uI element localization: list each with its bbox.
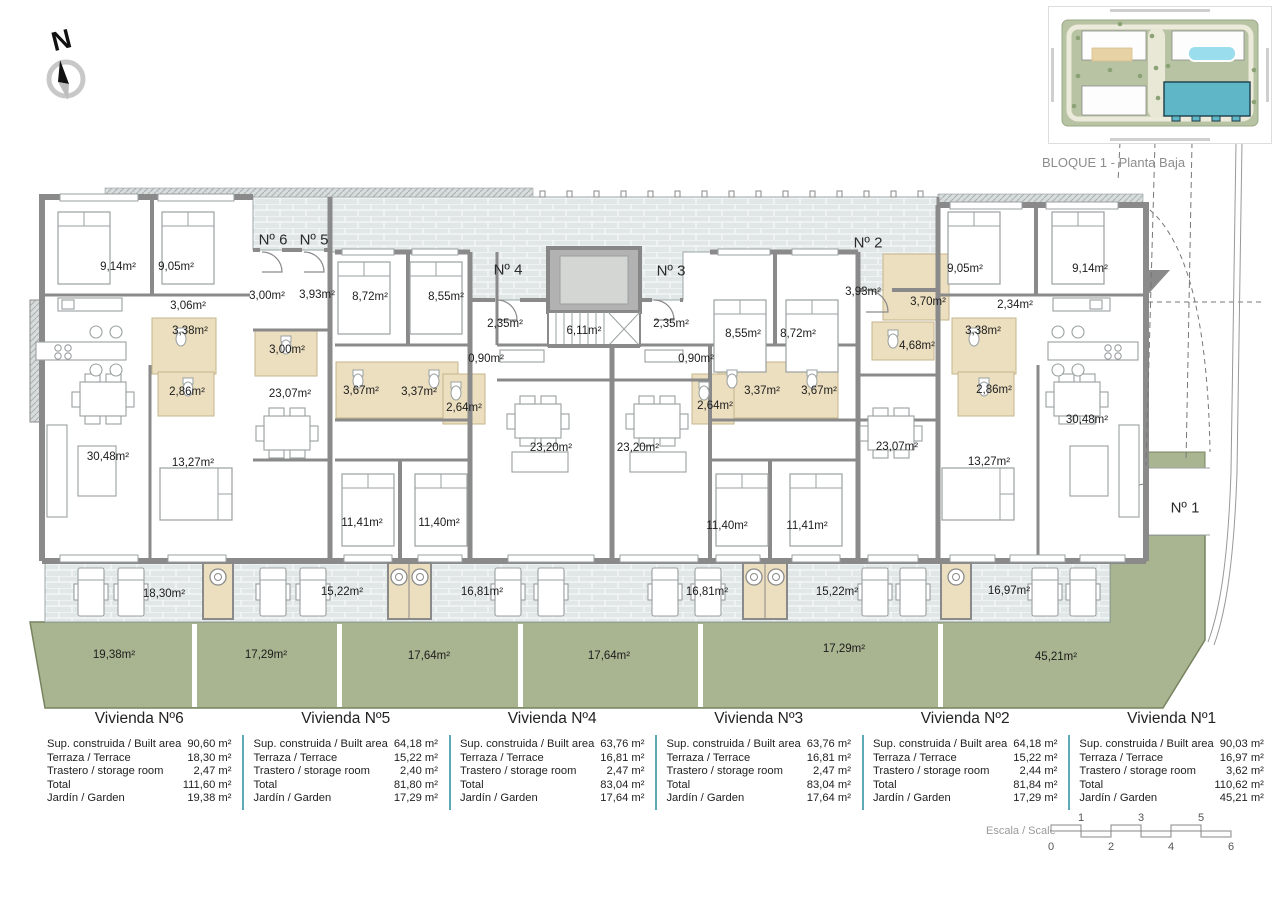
compass-icon: N bbox=[28, 22, 108, 117]
row-value: 90,03 m² bbox=[1214, 738, 1264, 752]
row-value: 83,04 m² bbox=[594, 779, 644, 793]
garden-divider bbox=[518, 624, 523, 707]
garden-divider bbox=[938, 624, 943, 707]
unit-table-row: Trastero / storage room2,47 m² bbox=[47, 765, 231, 779]
row-label: Sup. construida / Built area bbox=[460, 738, 594, 752]
floorplan-page: { "compass": {"label": "N"}, "site_plan"… bbox=[0, 0, 1280, 905]
scale-tick: 0 bbox=[1048, 841, 1054, 853]
unit-table-row: Jardín / Garden17,64 m² bbox=[460, 792, 644, 806]
row-label: Jardín / Garden bbox=[47, 792, 125, 806]
row-label: Terraza / Terrace bbox=[253, 752, 337, 766]
row-label: Trastero / storage room bbox=[460, 765, 576, 779]
row-label: Total bbox=[253, 779, 277, 793]
row-value: 90,60 m² bbox=[181, 738, 231, 752]
scale-tick: 1 bbox=[1078, 812, 1084, 824]
scale-segments bbox=[1051, 825, 1231, 837]
unit-table-row: Total111,60 m² bbox=[47, 779, 231, 793]
row-label: Total bbox=[460, 779, 484, 793]
unit-table-row: Sup. construida / Built area90,03 m² bbox=[1079, 738, 1263, 752]
elevator bbox=[560, 256, 628, 304]
unit-table-title: Vivienda Nº1 bbox=[1079, 710, 1263, 728]
unit-table-row: Trastero / storage room2,47 m² bbox=[666, 765, 850, 779]
unit-table-row: Total110,62 m² bbox=[1079, 779, 1263, 793]
unit-table-row: Sup. construida / Built area64,18 m² bbox=[873, 738, 1057, 752]
scale-tick: 5 bbox=[1198, 812, 1204, 824]
row-value: 63,76 m² bbox=[801, 738, 851, 752]
unit-table: Vivienda Nº6Sup. construida / Built area… bbox=[36, 710, 242, 806]
unit-table-row: Terraza / Terrace15,22 m² bbox=[253, 752, 437, 766]
unit-table-row: Total81,84 m² bbox=[873, 779, 1057, 793]
pool bbox=[1188, 46, 1236, 61]
row-label: Trastero / storage room bbox=[1079, 765, 1195, 779]
row-label: Jardín / Garden bbox=[1079, 792, 1157, 806]
unit-table-title: Vivienda Nº2 bbox=[873, 710, 1057, 728]
unit-table: Vivienda Nº2Sup. construida / Built area… bbox=[862, 710, 1068, 806]
unit-table-row: Terraza / Terrace16,81 m² bbox=[460, 752, 644, 766]
unit-table-row: Terraza / Terrace16,81 m² bbox=[666, 752, 850, 766]
row-value: 64,18 m² bbox=[388, 738, 438, 752]
unit-tables: Vivienda Nº6Sup. construida / Built area… bbox=[36, 710, 1244, 806]
row-value: 3,62 m² bbox=[1220, 765, 1264, 779]
row-value: 2,47 m² bbox=[807, 765, 851, 779]
row-value: 2,47 m² bbox=[188, 765, 232, 779]
unit-table-row: Terraza / Terrace16,97 m² bbox=[1079, 752, 1263, 766]
row-value: 19,38 m² bbox=[181, 792, 231, 806]
row-label: Jardín / Garden bbox=[253, 792, 331, 806]
building-block bbox=[1082, 86, 1146, 115]
row-label: Sup. construida / Built area bbox=[253, 738, 387, 752]
drawing-title: BLOQUE 1 - Planta Baja bbox=[1042, 155, 1272, 170]
row-value: 17,29 m² bbox=[1007, 792, 1057, 806]
scale-tick: 6 bbox=[1228, 841, 1234, 853]
row-label: Terraza / Terrace bbox=[460, 752, 544, 766]
patio bbox=[1092, 48, 1132, 61]
unit-table-row: Jardín / Garden17,29 m² bbox=[253, 792, 437, 806]
row-value: 16,97 m² bbox=[1214, 752, 1264, 766]
row-label: Total bbox=[1079, 779, 1103, 793]
row-value: 17,64 m² bbox=[801, 792, 851, 806]
row-label: Terraza / Terrace bbox=[1079, 752, 1163, 766]
unit-table-row: Terraza / Terrace15,22 m² bbox=[873, 752, 1057, 766]
unit-table: Vivienda Nº5Sup. construida / Built area… bbox=[242, 710, 448, 806]
garden-divider bbox=[698, 624, 703, 707]
row-label: Sup. construida / Built area bbox=[1079, 738, 1213, 752]
stairs bbox=[548, 312, 640, 346]
row-label: Sup. construida / Built area bbox=[666, 738, 800, 752]
scale-tick: 3 bbox=[1138, 812, 1144, 824]
row-value: 16,81 m² bbox=[801, 752, 851, 766]
unit-table-title: Vivienda Nº4 bbox=[460, 710, 644, 728]
row-value: 111,60 m² bbox=[177, 779, 232, 793]
scale-tick: 2 bbox=[1108, 841, 1114, 853]
garden-divider bbox=[192, 624, 197, 707]
unit-table-row: Sup. construida / Built area90,60 m² bbox=[47, 738, 231, 752]
row-value: 17,29 m² bbox=[388, 792, 438, 806]
row-value: 2,44 m² bbox=[1013, 765, 1057, 779]
row-label: Terraza / Terrace bbox=[666, 752, 750, 766]
row-value: 81,80 m² bbox=[388, 779, 438, 793]
row-label: Total bbox=[873, 779, 897, 793]
row-value: 63,76 m² bbox=[594, 738, 644, 752]
row-label: Sup. construida / Built area bbox=[873, 738, 1007, 752]
row-label: Total bbox=[666, 779, 690, 793]
row-label: Trastero / storage room bbox=[666, 765, 782, 779]
row-value: 45,21 m² bbox=[1214, 792, 1264, 806]
row-value: 15,22 m² bbox=[1007, 752, 1057, 766]
row-label: Total bbox=[47, 779, 71, 793]
row-label: Trastero / storage room bbox=[873, 765, 989, 779]
row-value: 81,84 m² bbox=[1007, 779, 1057, 793]
unit-table-title: Vivienda Nº6 bbox=[47, 710, 231, 728]
unit-table-row: Total83,04 m² bbox=[460, 779, 644, 793]
row-value: 16,81 m² bbox=[594, 752, 644, 766]
unit-table-row: Sup. construida / Built area63,76 m² bbox=[460, 738, 644, 752]
compass-north-label: N bbox=[48, 23, 74, 57]
site-plan-thumbnail bbox=[1048, 6, 1272, 146]
row-label: Trastero / storage room bbox=[253, 765, 369, 779]
scale-tick: 4 bbox=[1168, 841, 1174, 853]
highlighted-block-1 bbox=[1164, 82, 1250, 116]
row-label: Jardín / Garden bbox=[460, 792, 538, 806]
garden-divider bbox=[337, 624, 342, 707]
unit-table-title: Vivienda Nº5 bbox=[253, 710, 437, 728]
scale-bar: Escala / Scale 1350246 bbox=[986, 812, 1246, 858]
row-value: 18,30 m² bbox=[181, 752, 231, 766]
row-value: 17,64 m² bbox=[594, 792, 644, 806]
unit-table-row: Trastero / storage room2,40 m² bbox=[253, 765, 437, 779]
unit-table-row: Trastero / storage room2,47 m² bbox=[460, 765, 644, 779]
row-value: 83,04 m² bbox=[801, 779, 851, 793]
unit-table-row: Total83,04 m² bbox=[666, 779, 850, 793]
row-value: 64,18 m² bbox=[1007, 738, 1057, 752]
row-label: Jardín / Garden bbox=[873, 792, 951, 806]
unit-table: Vivienda Nº3Sup. construida / Built area… bbox=[655, 710, 861, 806]
row-value: 2,40 m² bbox=[394, 765, 438, 779]
fence-ticks bbox=[540, 191, 923, 197]
stair-core bbox=[548, 248, 640, 346]
unit-table-title: Vivienda Nº3 bbox=[666, 710, 850, 728]
row-label: Sup. construida / Built area bbox=[47, 738, 181, 752]
unit-table-row: Sup. construida / Built area63,76 m² bbox=[666, 738, 850, 752]
unit-table: Vivienda Nº1Sup. construida / Built area… bbox=[1068, 710, 1274, 806]
row-label: Trastero / storage room bbox=[47, 765, 163, 779]
unit-table-row: Trastero / storage room2,44 m² bbox=[873, 765, 1057, 779]
unit-table-row: Total81,80 m² bbox=[253, 779, 437, 793]
unit-table: Vivienda Nº4Sup. construida / Built area… bbox=[449, 710, 655, 806]
unit-table-row: Sup. construida / Built area64,18 m² bbox=[253, 738, 437, 752]
scale-label: Escala / Scale bbox=[986, 825, 1056, 837]
unit-table-row: Jardín / Garden19,38 m² bbox=[47, 792, 231, 806]
row-label: Terraza / Terrace bbox=[47, 752, 131, 766]
unit-table-row: Jardín / Garden17,29 m² bbox=[873, 792, 1057, 806]
unit-table-row: Trastero / storage room3,62 m² bbox=[1079, 765, 1263, 779]
row-label: Jardín / Garden bbox=[666, 792, 744, 806]
unit-table-row: Jardín / Garden17,64 m² bbox=[666, 792, 850, 806]
row-value: 15,22 m² bbox=[388, 752, 438, 766]
row-value: 2,47 m² bbox=[601, 765, 645, 779]
row-label: Terraza / Terrace bbox=[873, 752, 957, 766]
row-value: 110,62 m² bbox=[1208, 779, 1264, 793]
unit-table-row: Terraza / Terrace18,30 m² bbox=[47, 752, 231, 766]
unit-table-row: Jardín / Garden45,21 m² bbox=[1079, 792, 1263, 806]
